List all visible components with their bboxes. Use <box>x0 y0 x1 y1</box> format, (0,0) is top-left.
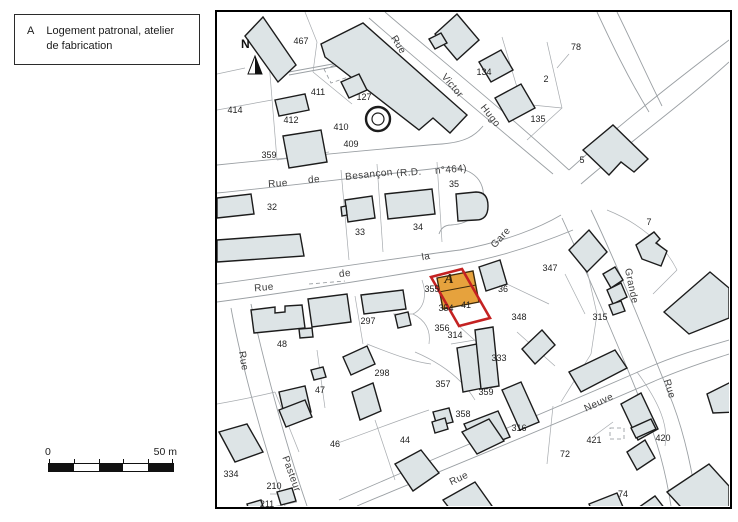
building-shape <box>707 382 729 413</box>
building-shape <box>217 194 254 218</box>
building-shape <box>277 488 296 505</box>
parcel-line <box>507 284 549 304</box>
parcel-line <box>335 410 429 444</box>
legend-box: A Logement patronal, atelier de fabricat… <box>14 14 200 65</box>
building-shape <box>456 192 488 221</box>
scale-bar-track <box>48 463 174 472</box>
parcel-line <box>413 280 425 314</box>
map-canvas <box>217 12 729 506</box>
chimney-circle <box>372 113 384 125</box>
parcel-line <box>217 68 245 74</box>
parcel-lines-layer <box>217 12 677 506</box>
building-shape <box>341 206 347 216</box>
building-shape <box>311 367 326 380</box>
building-shape <box>395 450 439 491</box>
building-shape <box>495 84 535 122</box>
building-shape <box>345 196 375 222</box>
building-shape <box>385 189 435 219</box>
building-shape <box>443 482 492 506</box>
parcel-line <box>377 164 383 252</box>
parcel-line <box>557 54 569 68</box>
parcel-line <box>375 420 395 480</box>
scale-tick <box>49 459 50 464</box>
scale-tick <box>74 459 75 464</box>
parcel-line <box>217 100 272 110</box>
building-shape <box>479 260 507 291</box>
dashed-line <box>610 428 624 439</box>
building-shape <box>352 383 381 420</box>
building-shape <box>569 230 607 272</box>
building-shape <box>361 290 406 314</box>
scale-segment <box>49 464 74 471</box>
parcel-line <box>217 392 275 404</box>
building-shape <box>275 94 309 116</box>
building-shape <box>479 50 513 82</box>
building-shape <box>583 125 648 175</box>
parcel-line <box>547 406 553 464</box>
scale-segment <box>99 464 124 471</box>
buildings-layer <box>217 14 729 506</box>
building-shape <box>217 234 304 262</box>
scale-tick <box>123 459 124 464</box>
building-shape <box>502 382 539 430</box>
building-shape <box>636 232 667 266</box>
scale-segment <box>148 464 173 471</box>
parcel-line <box>653 270 677 294</box>
building-shape <box>283 130 327 168</box>
parcel-line <box>587 270 597 354</box>
parcel-line <box>437 162 442 242</box>
building-shape <box>308 294 351 327</box>
legend-text: Logement patronal, atelier de fabricatio… <box>46 24 189 54</box>
building-shape <box>432 418 448 433</box>
building-shape <box>343 346 375 375</box>
scale-start-label: 0 <box>45 446 51 458</box>
parcel-line <box>527 42 562 140</box>
north-arrow-icon <box>248 56 262 74</box>
building-shape <box>247 500 264 506</box>
parcel-line <box>451 340 475 344</box>
building-shape <box>395 312 411 328</box>
building-shape <box>667 464 729 506</box>
parcel-line <box>367 344 431 364</box>
building-shape <box>219 424 263 462</box>
dashed-line <box>309 281 345 284</box>
highlight-layer <box>431 269 490 326</box>
building-shape <box>569 350 627 392</box>
page: A Logement patronal, atelier de fabricat… <box>0 0 738 522</box>
building-shape <box>299 328 313 338</box>
building-shape <box>627 440 655 470</box>
scale-tick <box>99 459 100 464</box>
scale-bar-labels: 0 50 m <box>45 446 177 458</box>
parcel-line <box>413 314 429 344</box>
legend-code: A <box>27 24 34 54</box>
scale-end-label: 50 m <box>154 446 177 458</box>
road-line <box>231 308 285 506</box>
road-line <box>217 169 431 193</box>
building-shape <box>589 493 626 506</box>
map-frame: N RueVictorHugoRuedeBesançon(R.D.n°464)R… <box>215 10 732 509</box>
parcel-line <box>565 274 585 314</box>
building-shape <box>522 330 555 364</box>
building-shape <box>664 272 729 334</box>
scale-bar: 0 50 m <box>45 446 177 472</box>
building-shape <box>251 305 305 333</box>
parcel-line <box>305 12 317 72</box>
scale-tick <box>148 459 149 464</box>
road-line <box>617 12 662 106</box>
road-line <box>217 126 483 165</box>
scale-tick <box>172 459 173 464</box>
building-shape <box>609 301 625 315</box>
building-shape <box>635 496 669 506</box>
